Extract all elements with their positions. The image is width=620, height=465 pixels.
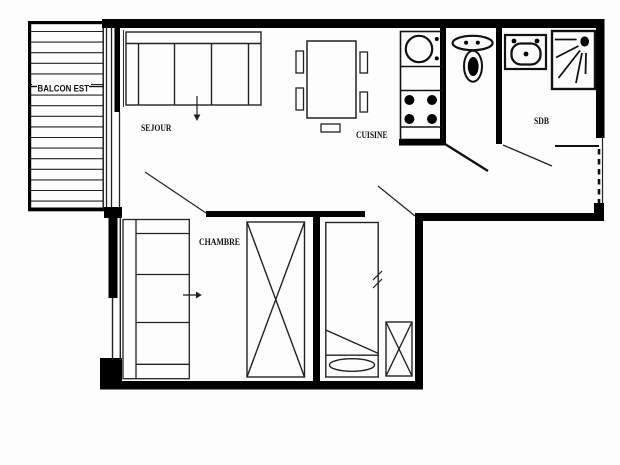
svg-text:SDB: SDB (534, 117, 550, 127)
svg-text:CHAMBRE: CHAMBRE (199, 237, 240, 248)
svg-text:SEJOUR: SEJOUR (141, 124, 172, 134)
svg-text:BALCON EST: BALCON EST (38, 84, 90, 94)
svg-text:CUISINE: CUISINE (356, 131, 388, 141)
